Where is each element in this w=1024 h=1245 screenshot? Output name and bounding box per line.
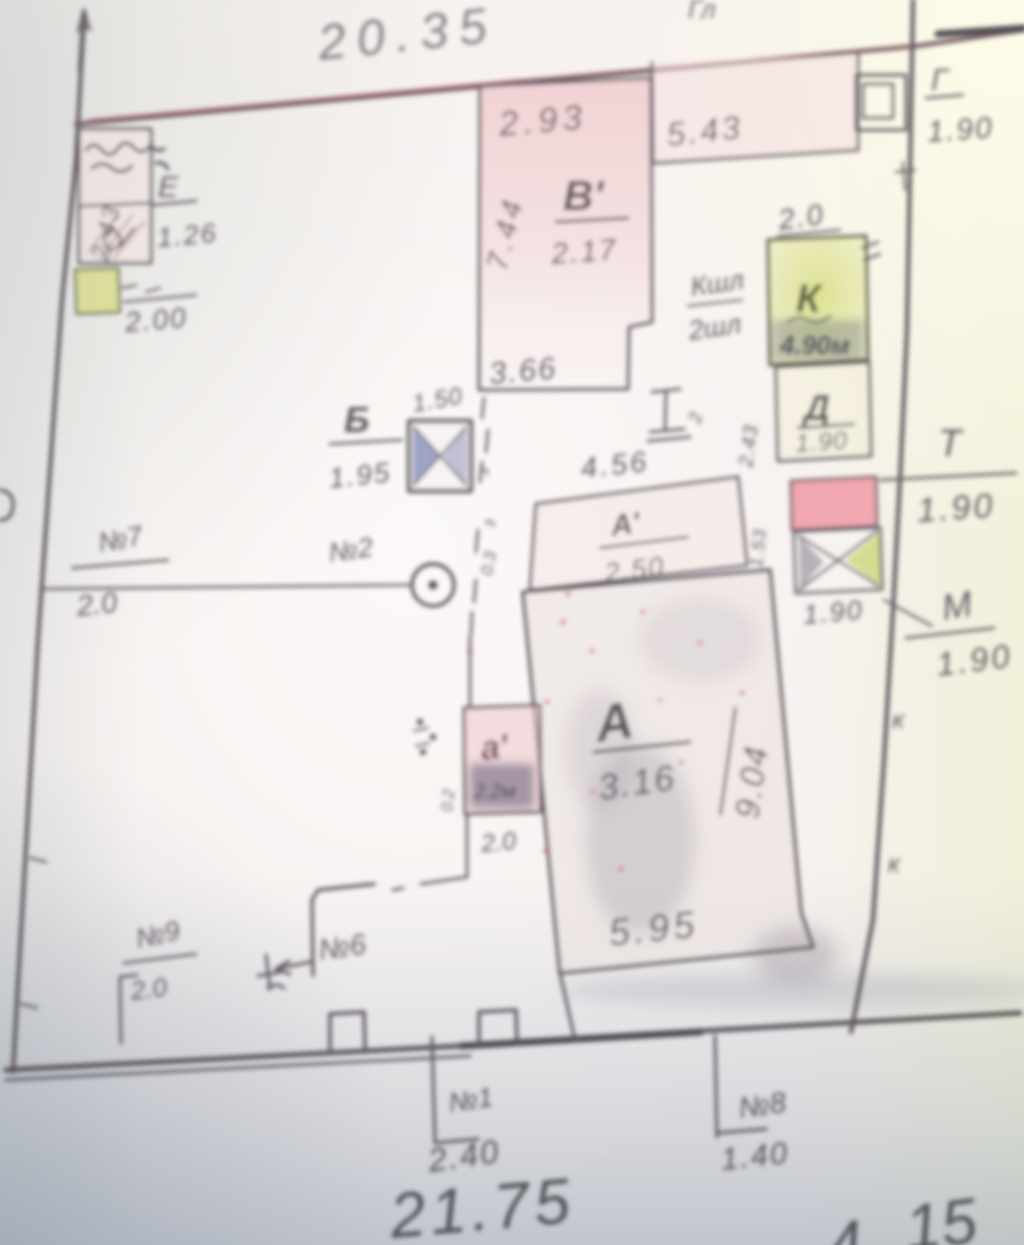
svg-text:1.53: 1.53: [746, 527, 770, 568]
svg-text:2.0: 2.0: [128, 972, 169, 1006]
svg-text:2.0: 2.0: [479, 827, 517, 858]
svg-text:Г: Г: [931, 62, 950, 97]
svg-text:Б: Б: [344, 399, 370, 440]
svg-text:1.90: 1.90: [802, 595, 865, 630]
svg-text:А': А': [608, 507, 642, 543]
svg-text:М: М: [939, 583, 975, 628]
svg-text:2.93: 2.93: [496, 97, 588, 144]
svg-text:№2: №2: [327, 532, 375, 568]
svg-text:Д: Д: [801, 387, 830, 428]
svg-text:3.66: 3.66: [488, 350, 559, 391]
svg-text:№8: №8: [737, 1087, 789, 1125]
svg-text:Гл: Гл: [688, 0, 716, 24]
svg-text:0.2: 0.2: [439, 788, 458, 812]
svg-text:к: к: [888, 850, 901, 878]
svg-text:№6: №6: [317, 929, 369, 967]
svg-text:2.2м: 2.2м: [473, 781, 516, 803]
svg-text:2.0: 2.0: [74, 587, 118, 623]
svg-text:Т: Т: [938, 423, 964, 465]
svg-text:4.90м: 4.90м: [779, 330, 850, 360]
svg-text:к: к: [892, 704, 906, 734]
svg-text:№1: №1: [447, 1082, 495, 1118]
svg-text:1.26: 1.26: [156, 218, 219, 253]
svg-text:1.90: 1.90: [916, 487, 997, 530]
svg-text:2.00: 2.00: [123, 302, 189, 338]
svg-text:15: 15: [901, 1184, 981, 1245]
svg-text:1.90: 1.90: [794, 426, 848, 458]
svg-text:В': В': [563, 172, 605, 219]
svg-text:2.17: 2.17: [549, 233, 619, 271]
svg-text:5.43: 5.43: [665, 108, 745, 153]
svg-text:К: К: [796, 277, 823, 321]
svg-text:1.90: 1.90: [926, 111, 995, 149]
svg-text:Е: Е: [158, 171, 179, 204]
svg-text:1.95: 1.95: [327, 457, 392, 494]
svg-text:1.40: 1.40: [719, 1135, 791, 1177]
